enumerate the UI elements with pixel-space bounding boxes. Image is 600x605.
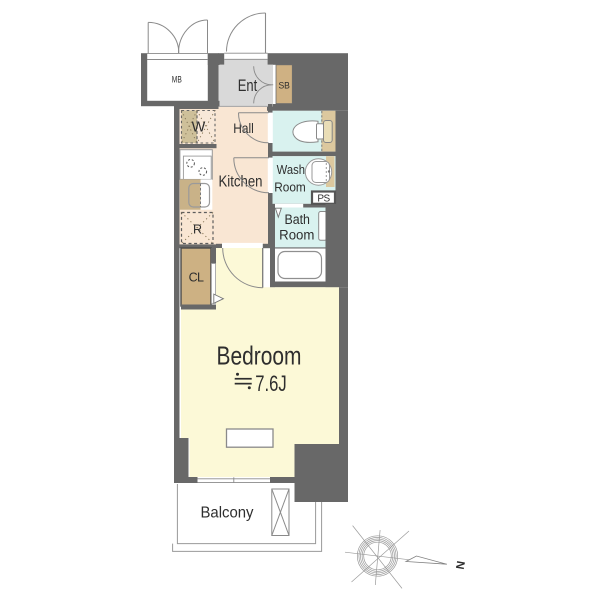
svg-text:W: W bbox=[192, 120, 206, 136]
svg-text:MB: MB bbox=[172, 75, 182, 85]
svg-text:Wash: Wash bbox=[277, 162, 305, 177]
svg-text:Room: Room bbox=[279, 228, 314, 243]
svg-text:7.6J: 7.6J bbox=[255, 371, 286, 396]
svg-text:PS: PS bbox=[317, 193, 330, 204]
svg-text:Bedroom: Bedroom bbox=[217, 341, 302, 371]
svg-text:Ent: Ent bbox=[238, 77, 258, 95]
svg-text:Room: Room bbox=[274, 180, 306, 195]
svg-text:SB: SB bbox=[278, 80, 290, 91]
svg-text:R: R bbox=[193, 223, 202, 237]
svg-text:Kitchen: Kitchen bbox=[219, 174, 263, 191]
svg-text:Bath: Bath bbox=[284, 212, 310, 227]
svg-text:Balcony: Balcony bbox=[201, 505, 254, 522]
svg-text:CL: CL bbox=[189, 271, 204, 285]
svg-text:Hall: Hall bbox=[233, 120, 254, 136]
